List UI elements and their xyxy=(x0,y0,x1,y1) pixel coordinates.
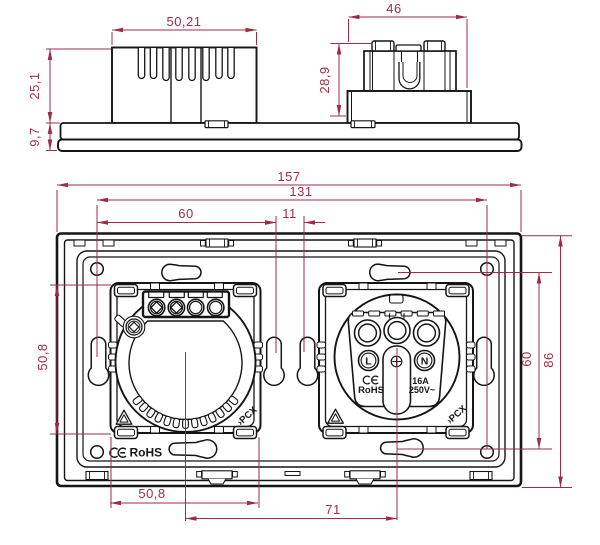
svg-text:60: 60 xyxy=(178,206,193,221)
svg-text:50,8: 50,8 xyxy=(138,486,165,501)
svg-text:N: N xyxy=(421,356,429,368)
svg-text:RoHS: RoHS xyxy=(130,446,163,460)
svg-text:71: 71 xyxy=(325,502,340,517)
svg-text:250V~: 250V~ xyxy=(409,385,435,395)
svg-text:L: L xyxy=(365,356,372,368)
svg-text:25,1: 25,1 xyxy=(27,72,42,99)
svg-text:60: 60 xyxy=(519,351,534,366)
svg-text:11: 11 xyxy=(282,206,297,221)
svg-text:28,9: 28,9 xyxy=(317,66,332,93)
svg-text:50,21: 50,21 xyxy=(166,14,201,29)
svg-text:46: 46 xyxy=(386,1,401,16)
svg-text:RoHS: RoHS xyxy=(358,385,384,396)
svg-text:9,7: 9,7 xyxy=(27,127,42,147)
svg-text:131: 131 xyxy=(289,184,312,199)
svg-text:157: 157 xyxy=(277,169,300,184)
svg-text:50,8: 50,8 xyxy=(35,343,50,370)
svg-text:86: 86 xyxy=(541,352,556,367)
